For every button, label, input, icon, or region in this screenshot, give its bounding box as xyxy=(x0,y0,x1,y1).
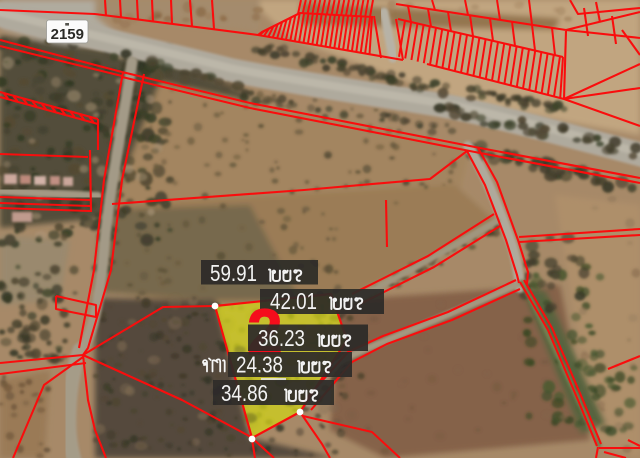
svg-text:36.23: 36.23 xyxy=(258,325,305,352)
svg-text:59.91: 59.91 xyxy=(210,260,257,287)
svg-text:34.86: 34.86 xyxy=(221,380,268,407)
svg-text:24.38: 24.38 xyxy=(236,352,283,379)
svg-text:2159: 2159 xyxy=(51,26,84,43)
